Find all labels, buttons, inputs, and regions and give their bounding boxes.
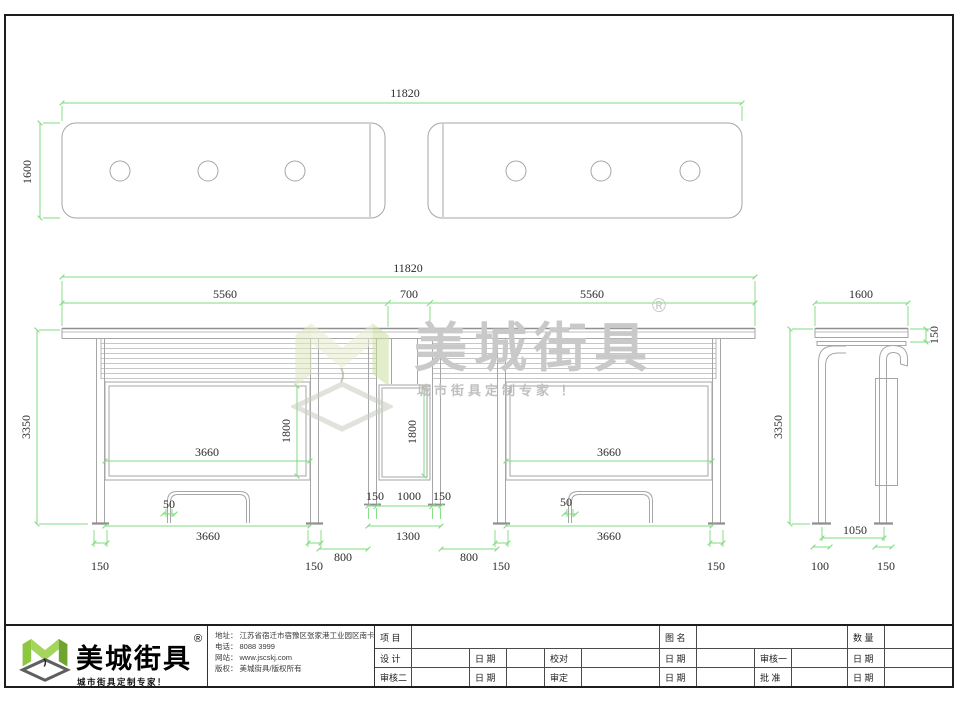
side-front-leg	[819, 346, 847, 523]
watermark-slogan: 城市街具定制专家 ！	[417, 380, 578, 399]
dim-label: 1800	[405, 420, 419, 444]
company-name: 美城街具	[76, 637, 192, 676]
dim-label: 1600	[849, 287, 873, 301]
bench-left	[168, 492, 250, 524]
table-row: 审核二 日 期 审定 日 期 批 准 日 期	[375, 668, 952, 686]
watermark-registered-icon: ®	[652, 296, 666, 318]
tb-label-date: 日 期	[848, 668, 885, 686]
dim-label: 150	[927, 326, 941, 344]
dim-label: 5560	[580, 287, 604, 301]
dim-label: 50	[163, 497, 175, 511]
dim-label: 150	[91, 559, 109, 573]
dim-label: 150	[366, 489, 384, 503]
tb-label-review1: 审核一	[755, 649, 792, 668]
tb-label-design: 设 计	[375, 649, 412, 668]
watermark-brand-text: 美城街具	[414, 306, 654, 382]
dim-label: 11820	[393, 261, 423, 275]
top-view	[62, 123, 742, 218]
tb-cell-project-value	[412, 626, 660, 649]
title-block-table: 项 目 图 名 数 量 设 计 日 期 校对 日 期 审核一 日 期 审核二 日…	[375, 626, 952, 686]
watermark-logo-icon	[291, 309, 393, 433]
tb-cell-empty	[885, 668, 952, 686]
company-slogan: 城市街具定制专家！	[77, 676, 167, 688]
dim-label: 1300	[396, 529, 420, 543]
company-logo-block: 美城街具 ® 城市街具定制专家！	[6, 626, 208, 686]
dim-label: 3660	[597, 529, 621, 543]
dim-label: 3350	[19, 415, 33, 439]
cad-sheet: { "colors": { "dimension_green": "#7fdb7…	[0, 0, 960, 704]
tb-cell-empty	[697, 668, 755, 686]
tb-label-date: 日 期	[470, 668, 507, 686]
tb-label-date: 日 期	[660, 649, 697, 668]
dim-label: 150	[305, 559, 323, 573]
tb-cell-drawing-name-value	[697, 626, 848, 649]
dim-label: 100	[811, 559, 829, 573]
tb-label-approve: 批 准	[755, 668, 792, 686]
dim-label: 1050	[843, 523, 867, 537]
contact-copyright: 版权：美城街具/版权所有	[215, 664, 374, 675]
tb-label-date: 日 期	[470, 649, 507, 668]
dim-label: 150	[877, 559, 895, 573]
dim-label: 800	[334, 550, 352, 564]
side-back-leg-hook	[880, 346, 908, 524]
tb-label-drawing-name: 图 名	[660, 626, 697, 649]
tb-cell-empty	[412, 649, 470, 668]
table-row: 设 计 日 期 校对 日 期 审核一 日 期	[375, 649, 952, 668]
roof-fixing-holes	[110, 161, 700, 181]
tb-cell-empty	[507, 668, 545, 686]
tb-label-verify: 审定	[545, 668, 582, 686]
dim-label: 700	[400, 287, 418, 301]
tb-cell-empty	[582, 668, 660, 686]
dim-label: 1600	[20, 160, 34, 184]
contact-address: 地址：江苏省宿迁市宿豫区张家港工业园区南卡路南侧1号	[215, 631, 374, 642]
tb-cell-quantity-value	[885, 626, 952, 649]
tb-cell-empty	[697, 649, 755, 668]
dim-label: 11820	[390, 86, 420, 100]
tb-label-project: 项 目	[375, 626, 412, 649]
tb-label-proofread: 校对	[545, 649, 582, 668]
dim-label: 3660	[195, 445, 219, 459]
company-logo-icon	[19, 632, 71, 682]
dim-label: 150	[707, 559, 725, 573]
tb-cell-empty	[412, 668, 470, 686]
tb-cell-empty	[885, 649, 952, 668]
dim-label: 150	[433, 489, 451, 503]
tb-label-quantity: 数 量	[848, 626, 885, 649]
company-contact-block: 地址：江苏省宿迁市宿豫区张家港工业园区南卡路南侧1号 电话：8088 3999 …	[208, 626, 375, 686]
registered-icon: ®	[194, 633, 202, 645]
dim-label: 50	[560, 495, 572, 509]
side-roof	[815, 328, 908, 346]
tb-label-date: 日 期	[660, 668, 697, 686]
title-block: 美城街具 ® 城市街具定制专家！ 地址：江苏省宿迁市宿豫区张家港工业园区南卡路南…	[6, 624, 952, 686]
table-row: 项 目 图 名 数 量	[375, 626, 952, 649]
tb-label-review2: 审核二	[375, 668, 412, 686]
contact-website: 网站：www.jscskj.com	[215, 653, 374, 664]
side-view	[812, 328, 908, 524]
dim-label: 800	[460, 550, 478, 564]
contact-phone: 电话：8088 3999	[215, 642, 374, 653]
bench-right	[569, 492, 653, 524]
dim-label: 5560	[213, 287, 237, 301]
tb-cell-empty	[582, 649, 660, 668]
dim-label: 150	[492, 559, 510, 573]
tb-cell-empty	[792, 668, 848, 686]
dim-label: 3660	[597, 445, 621, 459]
dim-label: 1000	[397, 489, 421, 503]
tb-label-date: 日 期	[848, 649, 885, 668]
tb-cell-empty	[792, 649, 848, 668]
roof-panel-right	[428, 123, 742, 218]
tb-cell-empty	[507, 649, 545, 668]
dim-label: 3660	[196, 529, 220, 543]
dim-label: 3350	[771, 415, 785, 439]
